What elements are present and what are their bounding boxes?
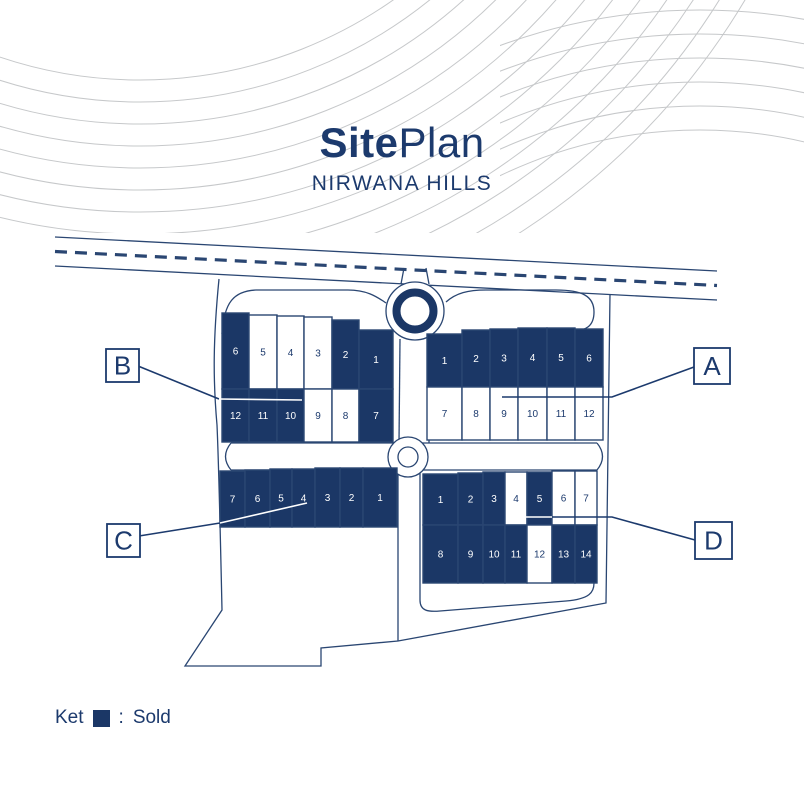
lot-number: 12 xyxy=(534,550,546,561)
lot-number: 11 xyxy=(556,409,567,420)
lot-number: 2 xyxy=(343,350,349,361)
lot-number: 6 xyxy=(255,494,261,505)
lot-number: 8 xyxy=(473,409,479,420)
vertical-road-left-edge xyxy=(399,339,400,443)
lot-number: 5 xyxy=(260,348,266,359)
site-plan-canvas: 1234567891011126543211211109877654321123… xyxy=(0,0,804,804)
lot-number: 4 xyxy=(530,353,536,364)
lot-number: 14 xyxy=(580,550,592,561)
lot-number: 1 xyxy=(438,495,444,506)
lot-number: 11 xyxy=(511,550,522,561)
contour-arc xyxy=(0,0,712,212)
roundabout-south-island xyxy=(398,447,418,467)
lot-number: 7 xyxy=(442,409,448,420)
block-label-B: B xyxy=(114,351,131,381)
legend-ket-label: Ket xyxy=(55,707,84,729)
leader-B xyxy=(138,366,219,399)
lot-number: 8 xyxy=(343,411,349,422)
road-network xyxy=(55,237,717,666)
block-D: 1234567891011121314 xyxy=(423,471,597,583)
lot-number: 7 xyxy=(230,495,236,506)
leader-B-inner xyxy=(219,399,302,400)
lot-number: 6 xyxy=(586,354,592,365)
road-stub-right xyxy=(426,268,429,284)
lot-number: 6 xyxy=(233,347,239,358)
lot-number: 1 xyxy=(373,355,379,366)
legend-sold-swatch xyxy=(93,710,110,727)
lot-number: 1 xyxy=(442,356,448,367)
main-road-top-line xyxy=(55,237,717,271)
main-road-bottom-line xyxy=(55,266,717,300)
lot-number: 11 xyxy=(258,411,269,422)
legend: Ket : Sold xyxy=(55,707,171,729)
block-A: 123456789101112 xyxy=(427,328,603,440)
main-road-center-dashed-line xyxy=(55,252,717,286)
lot-number: 4 xyxy=(288,348,294,359)
lot-number: 5 xyxy=(558,353,564,364)
legend-sold-label: Sold xyxy=(133,707,171,729)
legend-separator: : xyxy=(119,707,124,729)
contour-arc xyxy=(0,0,580,80)
contour-arc xyxy=(0,0,646,146)
lot-number: 9 xyxy=(468,550,474,561)
lot-number: 3 xyxy=(491,494,497,505)
contour-arc xyxy=(0,0,778,278)
lot-number: 5 xyxy=(278,494,284,505)
lot-number: 10 xyxy=(285,411,297,422)
lot-number: 12 xyxy=(583,409,595,420)
lot-number: 6 xyxy=(561,494,567,505)
lot-number: 3 xyxy=(325,493,331,504)
leader-C xyxy=(139,523,220,536)
lot-number: 10 xyxy=(527,409,539,420)
block-label-C: C xyxy=(114,526,133,556)
block-label-A: A xyxy=(703,351,721,381)
lot-number: 5 xyxy=(537,494,543,505)
block-C: 7654321 xyxy=(220,468,397,527)
roundabout-north xyxy=(386,282,444,340)
lot-number: 9 xyxy=(501,409,507,420)
lot-number: 2 xyxy=(468,495,474,506)
lot-number: 7 xyxy=(583,494,589,505)
lot-number: 12 xyxy=(230,411,242,422)
roundabout-north-island xyxy=(397,293,434,330)
lot-number: 9 xyxy=(315,411,321,422)
lot-number: 3 xyxy=(501,354,507,365)
lot-number: 4 xyxy=(513,494,519,505)
block-label-D: D xyxy=(704,526,723,556)
contour-arc xyxy=(0,0,804,322)
lot-number: 2 xyxy=(473,354,479,365)
lot-number: 7 xyxy=(373,411,379,422)
road-above-block-a xyxy=(446,290,594,331)
lot-number: 1 xyxy=(377,493,383,504)
block-B: 654321121110987 xyxy=(222,313,393,442)
lot-number: 3 xyxy=(315,349,321,360)
lot-number: 8 xyxy=(438,550,444,561)
lot-number: 10 xyxy=(488,550,500,561)
contour-arc xyxy=(0,0,756,256)
lot-number: 13 xyxy=(558,550,570,561)
lot-number: 2 xyxy=(349,493,355,504)
contour-arc xyxy=(0,0,624,124)
